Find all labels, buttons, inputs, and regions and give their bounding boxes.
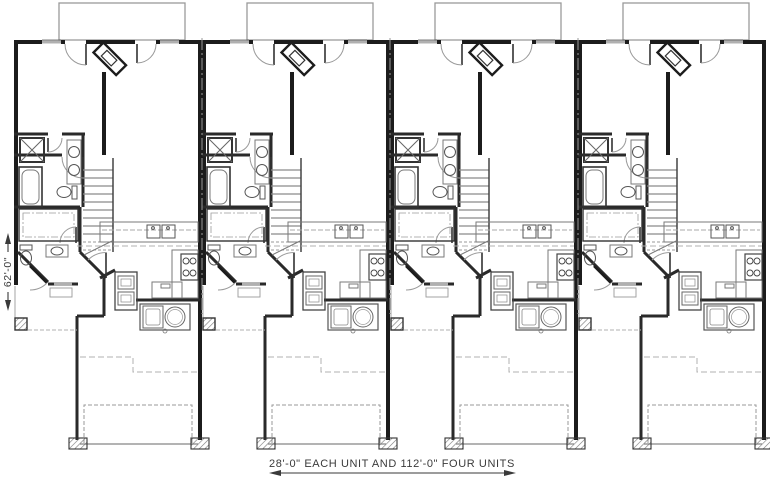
width-dimension-label: 28'-0" EACH UNIT AND 112'-0" FOUR UNITS — [269, 458, 515, 470]
floorplan-page: 62'-0" 28'-0" EACH UNIT AND 112'-0" FOUR… — [0, 0, 770, 479]
depth-arrow-down — [5, 300, 11, 311]
units-group — [14, 3, 770, 449]
unit-plan-unit-4 — [578, 3, 770, 449]
depth-arrow-up — [5, 233, 11, 244]
width-dimension: 28'-0" EACH UNIT AND 112'-0" FOUR UNITS — [269, 458, 516, 476]
depth-dimension: 62'-0" — [2, 233, 14, 311]
width-arrow-left — [269, 470, 281, 476]
floorplan-canvas: 62'-0" 28'-0" EACH UNIT AND 112'-0" FOUR… — [0, 0, 770, 479]
depth-dimension-label: 62'-0" — [2, 257, 14, 287]
unit-plan-unit-1 — [14, 3, 209, 449]
unit-plan-unit-3 — [390, 3, 585, 449]
width-arrow-right — [504, 470, 516, 476]
unit-plan-unit-2 — [202, 3, 397, 449]
